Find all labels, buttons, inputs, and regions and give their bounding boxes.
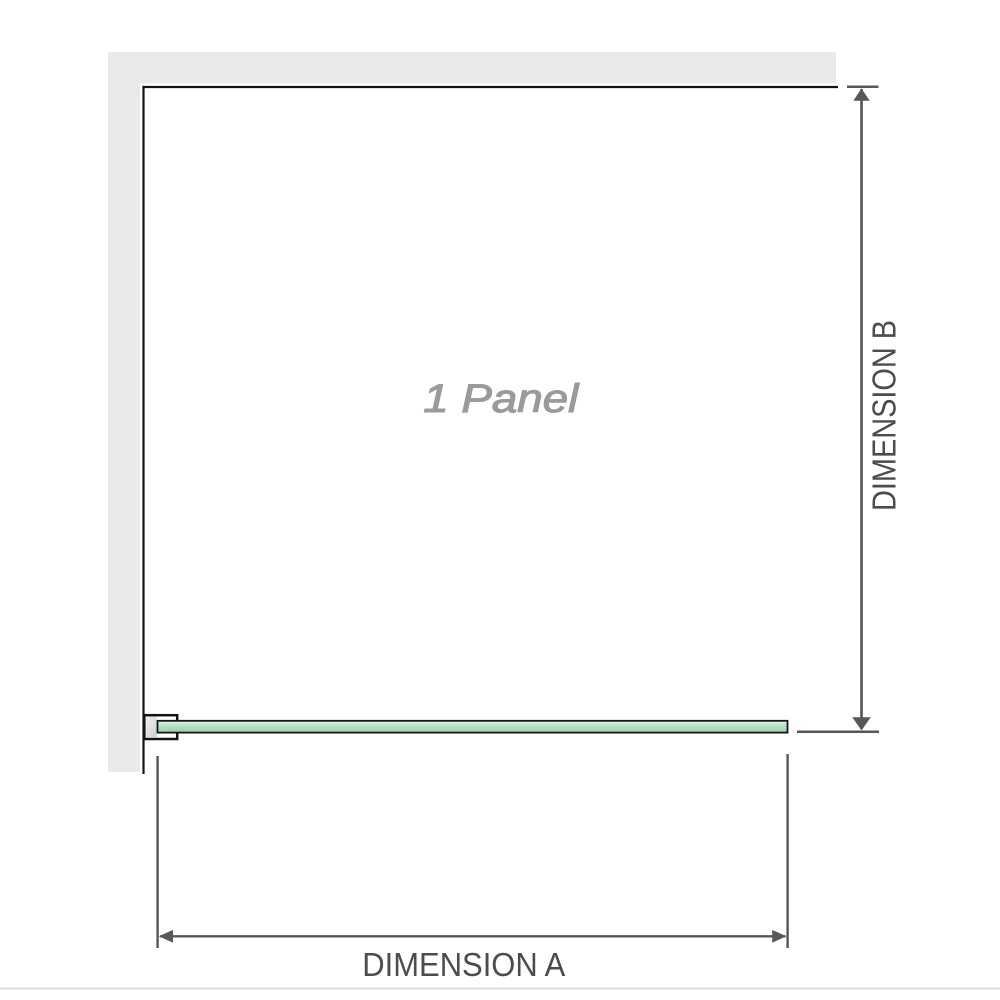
svg-text:1 Panel: 1 Panel bbox=[423, 377, 579, 421]
svg-text:DIMENSION A: DIMENSION A bbox=[362, 946, 565, 983]
svg-text:DIMENSION B: DIMENSION B bbox=[865, 320, 902, 511]
